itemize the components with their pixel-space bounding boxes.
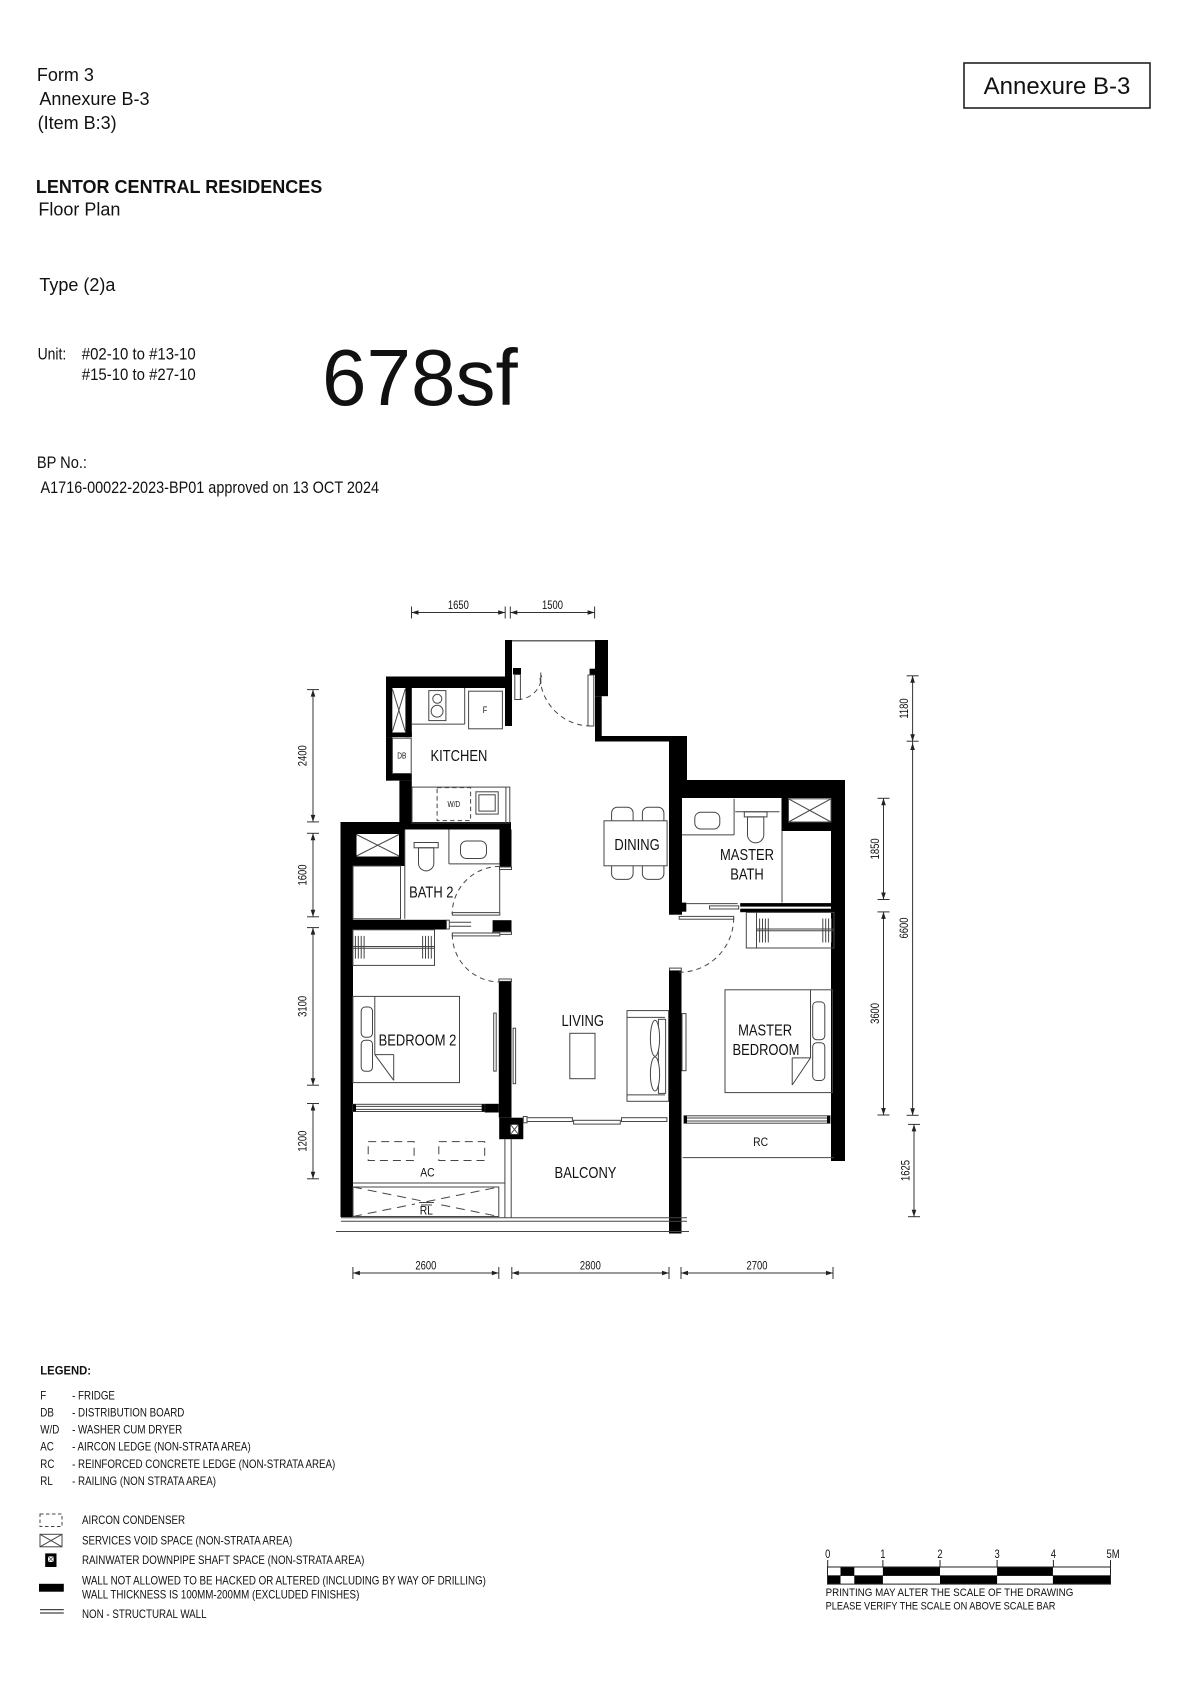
svg-text:Form 3: Form 3 (37, 65, 94, 85)
svg-text:LENTOR CENTRAL RESIDENCES: LENTOR CENTRAL RESIDENCES (36, 177, 322, 197)
svg-text:Annexure B-3: Annexure B-3 (984, 73, 1131, 100)
svg-text:BEDROOM: BEDROOM (732, 1042, 799, 1060)
svg-text:1600: 1600 (297, 864, 310, 885)
svg-text:- AIRCON LEDGE (NON-STRATA ARE: - AIRCON LEDGE (NON-STRATA AREA) (72, 1441, 251, 1454)
svg-text:1650: 1650 (448, 599, 469, 612)
svg-text:6600: 6600 (898, 917, 911, 938)
svg-text:2400: 2400 (297, 745, 310, 766)
svg-text:1: 1 (880, 1548, 885, 1561)
svg-text:AC: AC (420, 1167, 434, 1180)
svg-text:RC: RC (40, 1458, 54, 1471)
svg-text:- WASHER CUM DRYER: - WASHER CUM DRYER (72, 1424, 182, 1437)
svg-text:BP No.:: BP No.: (37, 454, 87, 472)
svg-text:1180: 1180 (898, 698, 911, 718)
svg-text:2600: 2600 (415, 1260, 436, 1273)
svg-text:BATH: BATH (730, 866, 764, 884)
svg-text:MASTER: MASTER (720, 847, 774, 865)
svg-text:BEDROOM 2: BEDROOM 2 (379, 1032, 457, 1050)
svg-text:1850: 1850 (869, 838, 882, 859)
svg-text:- FRIDGE: - FRIDGE (72, 1390, 115, 1403)
svg-text:BALCONY: BALCONY (555, 1165, 617, 1183)
svg-text:1200: 1200 (297, 1131, 310, 1152)
svg-text:DB: DB (40, 1407, 54, 1420)
svg-text:DB: DB (397, 751, 406, 761)
svg-text:- DISTRIBUTION BOARD: - DISTRIBUTION BOARD (72, 1407, 185, 1420)
svg-text:RL: RL (420, 1205, 433, 1218)
svg-text:4: 4 (1051, 1548, 1056, 1561)
svg-text:F: F (40, 1390, 46, 1403)
svg-text:3: 3 (994, 1548, 999, 1561)
svg-text:DINING: DINING (614, 837, 659, 855)
svg-text:Floor Plan: Floor Plan (38, 200, 120, 220)
svg-text:#02-10 to #13-10: #02-10 to #13-10 (82, 345, 196, 363)
svg-text:2800: 2800 (580, 1260, 601, 1273)
svg-text:F: F (483, 705, 488, 715)
svg-text:NON - STRUCTURAL WALL: NON - STRUCTURAL WALL (82, 1608, 207, 1621)
svg-text:0: 0 (825, 1548, 830, 1561)
svg-text:PLEASE VERIFY THE SCALE ON ABO: PLEASE VERIFY THE SCALE ON ABOVE SCALE B… (826, 1601, 1056, 1613)
svg-text:2700: 2700 (747, 1260, 768, 1273)
svg-text:WALL NOT ALLOWED TO BE HACKED: WALL NOT ALLOWED TO BE HACKED OR ALTERED… (82, 1575, 486, 1588)
svg-text:KITCHEN: KITCHEN (430, 748, 487, 766)
svg-text:678sf: 678sf (322, 333, 518, 422)
svg-text:PRINTING MAY ALTER THE SCALE O: PRINTING MAY ALTER THE SCALE OF THE DRAW… (826, 1588, 1074, 1600)
svg-text:5M: 5M (1106, 1548, 1119, 1561)
svg-text:Type (2)a: Type (2)a (39, 275, 116, 295)
svg-text:#15-10 to #27-10: #15-10 to #27-10 (82, 366, 196, 384)
svg-text:Annexure B-3: Annexure B-3 (39, 89, 149, 109)
svg-text:RAINWATER DOWNPIPE SHAFT SPACE: RAINWATER DOWNPIPE SHAFT SPACE (NON-STRA… (82, 1554, 364, 1567)
svg-text:AIRCON CONDENSER: AIRCON CONDENSER (82, 1514, 185, 1527)
svg-text:RL: RL (40, 1475, 53, 1488)
svg-text:W/D: W/D (447, 799, 460, 809)
svg-text:RC: RC (753, 1137, 768, 1150)
svg-text:1625: 1625 (900, 1160, 913, 1181)
svg-text:Unit:: Unit: (38, 345, 67, 364)
svg-text:BATH 2: BATH 2 (409, 884, 453, 902)
svg-text:WALL THICKNESS IS 100MM-200MM: WALL THICKNESS IS 100MM-200MM (EXCLUDED … (82, 1589, 359, 1602)
svg-text:- REINFORCED CONCRETE LEDGE (N: - REINFORCED CONCRETE LEDGE (NON-STRATA … (72, 1458, 335, 1471)
svg-text:(Item B:3): (Item B:3) (38, 113, 117, 133)
svg-text:A1716-00022-2023-BP01 approved: A1716-00022-2023-BP01 approved on 13 OCT… (41, 479, 380, 497)
svg-text:LEGEND:: LEGEND: (40, 1364, 91, 1377)
svg-text:W/D: W/D (40, 1424, 59, 1437)
svg-text:AC: AC (40, 1441, 54, 1454)
svg-text:3100: 3100 (297, 996, 310, 1017)
svg-text:- RAILING (NON STRATA AREA): - RAILING (NON STRATA AREA) (72, 1475, 216, 1488)
svg-text:SERVICES VOID SPACE (NON-STRAT: SERVICES VOID SPACE (NON-STRATA AREA) (82, 1535, 292, 1548)
svg-text:2: 2 (937, 1548, 942, 1561)
svg-text:LIVING: LIVING (561, 1013, 603, 1031)
svg-text:MASTER: MASTER (738, 1022, 792, 1040)
svg-text:3600: 3600 (869, 1003, 882, 1024)
svg-text:1500: 1500 (542, 599, 563, 612)
